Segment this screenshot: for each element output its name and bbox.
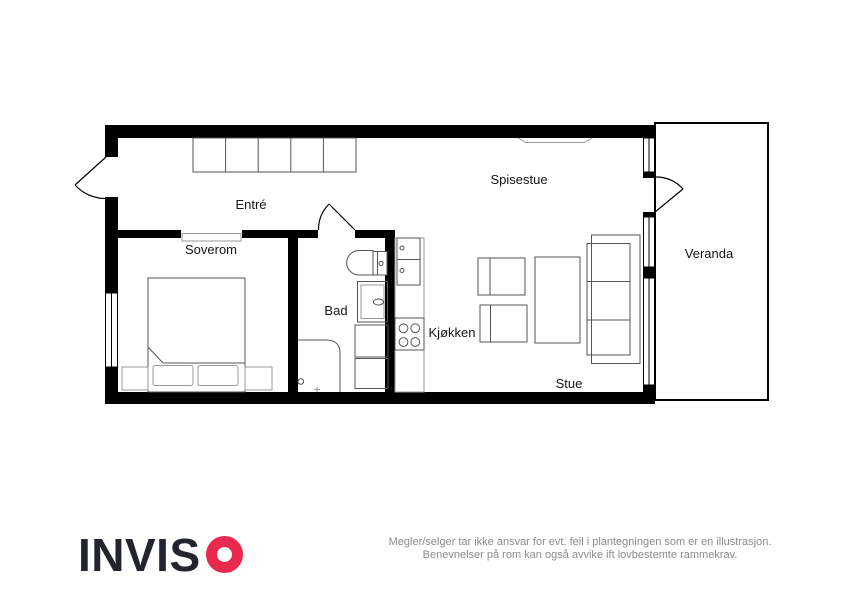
kitchen-sink-drain-1 [400,246,404,250]
wall-entre-soverom-b [242,230,318,238]
bathroom-door-leaf [329,204,355,230]
toilet-tank [373,252,387,276]
stove-burner [399,338,408,347]
wall-bottom [105,392,655,404]
doors [75,157,683,241]
wall-left-middle [105,197,118,293]
room-label-veranda: Veranda [685,246,734,261]
bed [148,278,245,392]
disclaimer: Megler/selger tar ikke ansvar for evt. f… [328,536,832,561]
floor-plan: Entré Spisestue Soverom Bad Kjøkken Stue… [0,0,849,490]
room-label-spisestue: Spisestue [490,172,547,187]
bed-frame [148,278,245,392]
toilet [347,251,387,276]
bathroom-door-swing [318,204,329,230]
sofa-seat [587,244,630,356]
entrance-door-leaf [75,157,106,185]
pillow-right [198,366,238,386]
wall-entre-soverom-a [118,230,181,238]
armchair-2-outline [480,305,527,342]
shower-tap-mark [314,387,320,392]
stove-burner [411,338,420,347]
shower-drain [298,379,304,385]
wall-right-pier-1 [643,172,655,178]
window-marker-spisestue-top [518,138,592,143]
disclaimer-line-2: Benevnelser på rom kan også avvike ift l… [328,549,832,562]
inviso-logo-letters: INVIS [78,535,201,575]
shower-screen [298,340,340,392]
nightstand-left [122,367,148,390]
wall-right-corner [643,385,655,404]
wardrobe-outline [193,138,356,172]
kitchen-sink-drain-2 [400,269,404,273]
room-label-bad: Bad [324,303,347,318]
wall-left-lower [105,367,118,404]
wall-left-upper [105,125,118,157]
bathroom-sink [358,282,388,323]
wall-top [105,125,655,138]
bathroom-cabinet-lower [355,359,388,389]
bathroom-cabinet-upper [355,325,388,357]
sofa-frame [592,235,641,364]
stove-burner [411,324,420,333]
kitchen-counter [395,238,424,392]
armchair-2 [480,305,527,342]
nightstand-right [245,367,272,390]
armchair-1 [478,258,525,295]
wall-right-pier-3 [643,267,655,278]
disclaimer-line-1: Megler/selger tar ikke ansvar for evt. f… [328,536,832,549]
inviso-logo-o-icon [206,536,243,573]
sofa [587,235,640,364]
armchair-1-outline [478,258,525,295]
wall-right-pier-2 [643,212,655,217]
inviso-logo: INVIS [78,535,243,575]
vanity-faucet [374,299,384,305]
wardrobe [193,138,356,172]
room-label-soverom: Soverom [185,242,237,257]
pillow-left [153,366,193,386]
veranda-outline [655,123,768,400]
duvet-fold [148,347,163,363]
shower [298,340,340,392]
stove-burner [399,324,408,333]
room-label-entre: Entré [235,197,266,212]
room-label-stue: Stue [556,376,583,391]
toilet-bowl [347,251,373,276]
room-label-kjokken: Kjøkken [429,325,476,340]
stove [395,318,424,350]
soverom-opening-sill [182,234,241,242]
wall-soverom-bad [288,238,298,392]
entrance-door-swing [75,185,106,199]
coffee-table [535,257,580,343]
